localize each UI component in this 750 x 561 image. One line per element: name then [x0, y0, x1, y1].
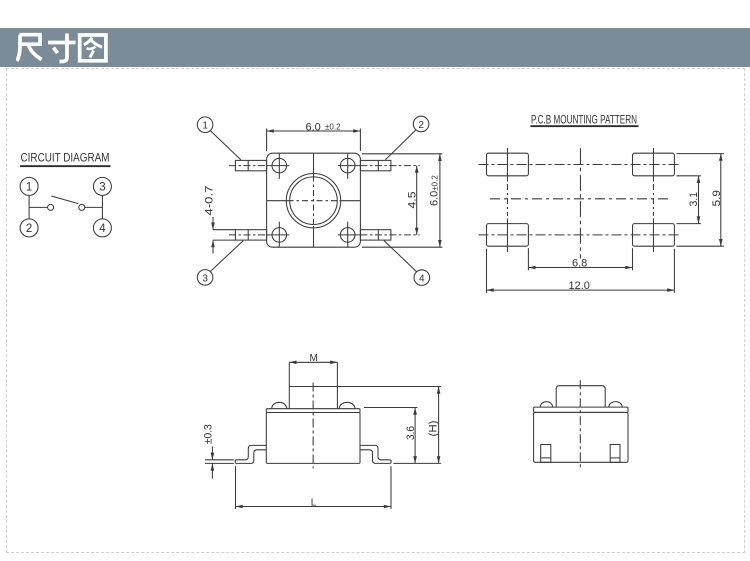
svg-text:4-0.7: 4-0.7 — [204, 186, 216, 216]
svg-text:L: L — [311, 497, 317, 508]
svg-text:4: 4 — [99, 223, 106, 235]
svg-text:CIRCUIT DIAGRAM: CIRCUIT DIAGRAM — [21, 153, 110, 165]
svg-text:(H): (H) — [427, 421, 439, 437]
svg-text:1: 1 — [26, 182, 32, 194]
svg-text:3: 3 — [99, 182, 105, 194]
svg-text:5.9: 5.9 — [711, 190, 723, 207]
svg-text:1: 1 — [202, 121, 208, 132]
svg-text:2: 2 — [418, 120, 424, 131]
svg-text:±0.2: ±0.2 — [325, 122, 341, 131]
svg-text:2: 2 — [26, 223, 32, 235]
svg-text:6.0: 6.0 — [306, 121, 321, 133]
svg-text:3: 3 — [202, 273, 208, 284]
svg-text:3.6: 3.6 — [405, 426, 417, 440]
svg-text:6.0±0.2: 6.0±0.2 — [429, 175, 441, 206]
svg-text:M: M — [310, 353, 318, 364]
svg-text:4.5: 4.5 — [407, 192, 419, 209]
svg-text:12.0: 12.0 — [569, 280, 590, 292]
svg-text:3.1: 3.1 — [688, 192, 700, 207]
svg-text:4: 4 — [419, 274, 425, 285]
svg-text:P.C.B MOUNTING PATTERN: P.C.B MOUNTING PATTERN — [531, 114, 637, 126]
svg-text:6.8: 6.8 — [572, 258, 587, 270]
svg-text:±0.3: ±0.3 — [203, 424, 215, 444]
